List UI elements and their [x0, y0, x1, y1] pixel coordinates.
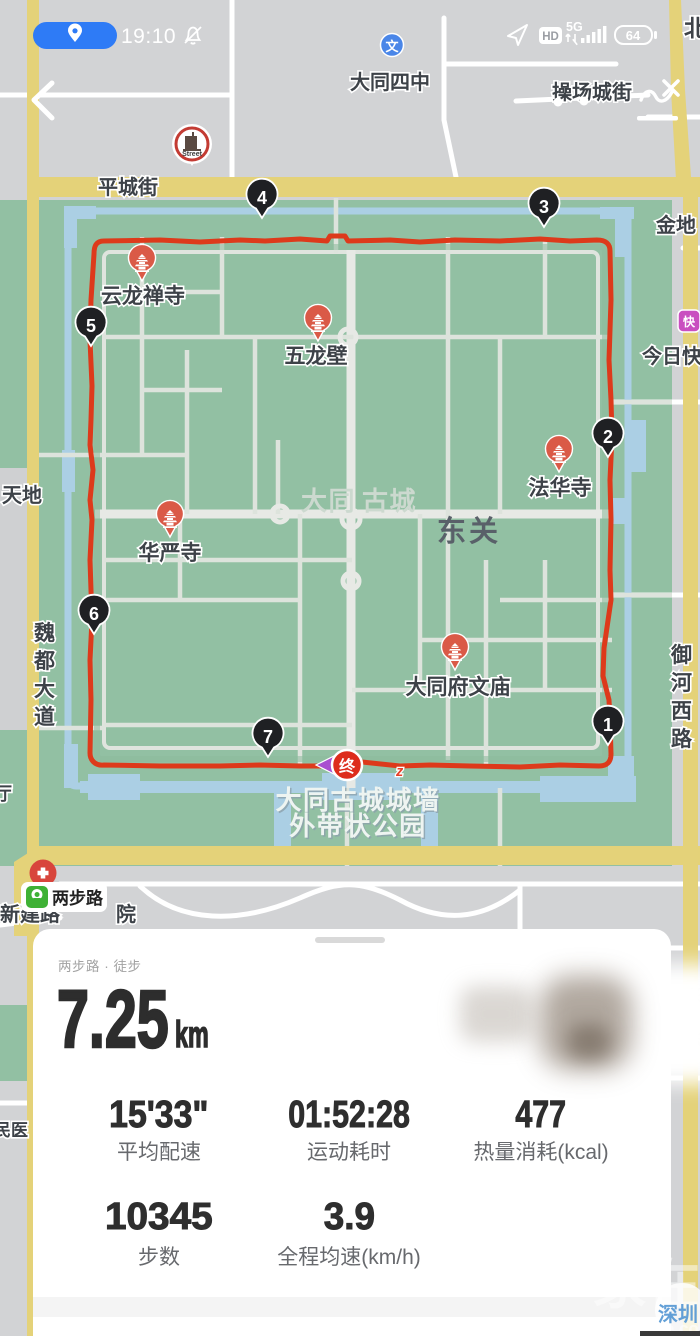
svg-text:大同府文庙: 大同府文庙 [406, 675, 511, 699]
svg-text:平城街: 平城街 [98, 175, 158, 199]
svg-text:Street: Street [182, 151, 203, 158]
svg-text:民医: 民医 [0, 1121, 28, 1140]
svg-text:终: 终 [339, 757, 356, 776]
svg-text:华严寺: 华严寺 [139, 541, 202, 565]
svg-text:天地: 天地 [2, 484, 42, 507]
svg-text:金地: 金地 [655, 213, 696, 237]
svg-text:z: z [395, 764, 404, 780]
svg-text:6: 6 [89, 604, 99, 624]
svg-text:文: 文 [385, 39, 399, 54]
svg-text:今日快: 今日快 [642, 344, 700, 368]
svg-text:1: 1 [603, 715, 613, 735]
svg-text:5G: 5G [566, 20, 583, 34]
svg-text:东关: 东关 [437, 514, 501, 548]
svg-text:外带状公园: 外带状公园 [289, 811, 427, 841]
svg-text:北: 北 [684, 15, 700, 41]
svg-text:五龙壁: 五龙壁 [285, 344, 348, 368]
svg-text:19:10: 19:10 [121, 25, 176, 48]
svg-text:7: 7 [263, 727, 273, 747]
svg-text:64: 64 [626, 28, 641, 43]
svg-text:法华寺: 法华寺 [529, 476, 592, 500]
svg-text:HD: HD [542, 31, 559, 43]
svg-text:厅: 厅 [0, 784, 12, 804]
svg-text:云龙禅寺: 云龙禅寺 [101, 284, 185, 308]
svg-text:两步路: 两步路 [52, 888, 104, 908]
svg-text:操场城街: 操场城街 [552, 80, 632, 104]
svg-text:5: 5 [86, 316, 96, 336]
svg-text:大同四中: 大同四中 [350, 70, 430, 94]
svg-text:4: 4 [257, 188, 267, 208]
svg-text:快: 快 [683, 314, 696, 329]
svg-text:2: 2 [603, 427, 613, 447]
svg-text:3: 3 [539, 197, 549, 217]
